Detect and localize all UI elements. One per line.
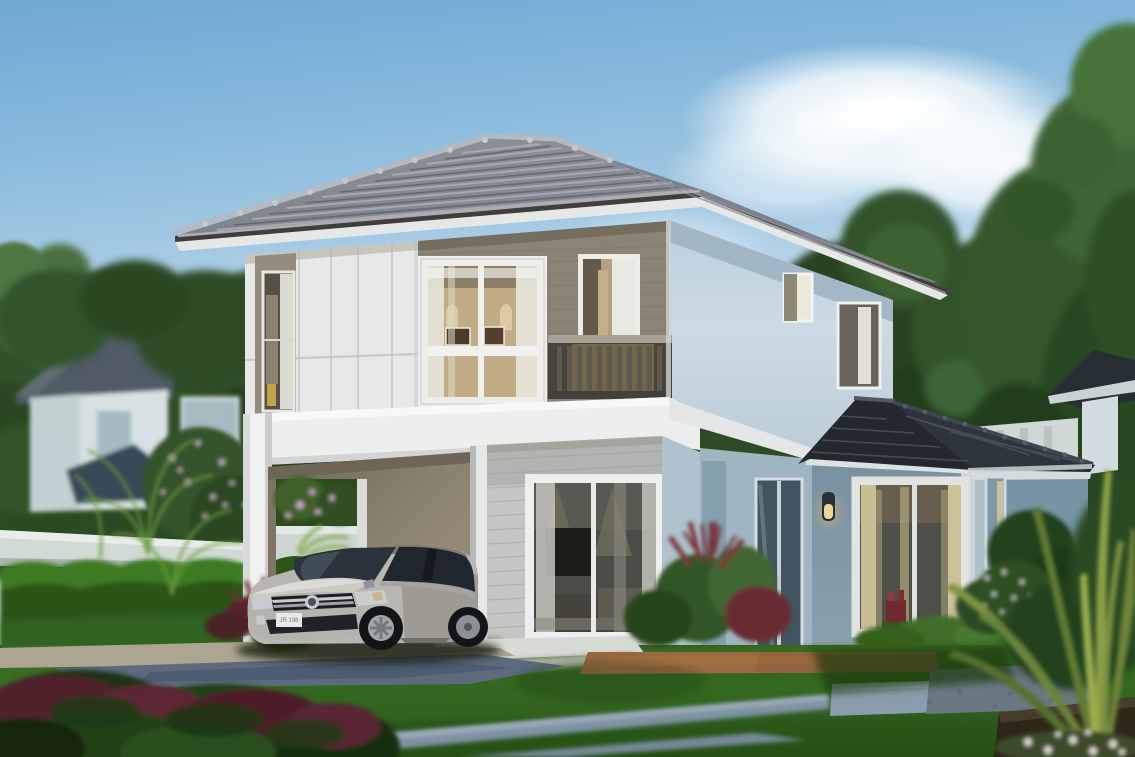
svg-text:JR 198: JR 198 [279, 618, 299, 624]
